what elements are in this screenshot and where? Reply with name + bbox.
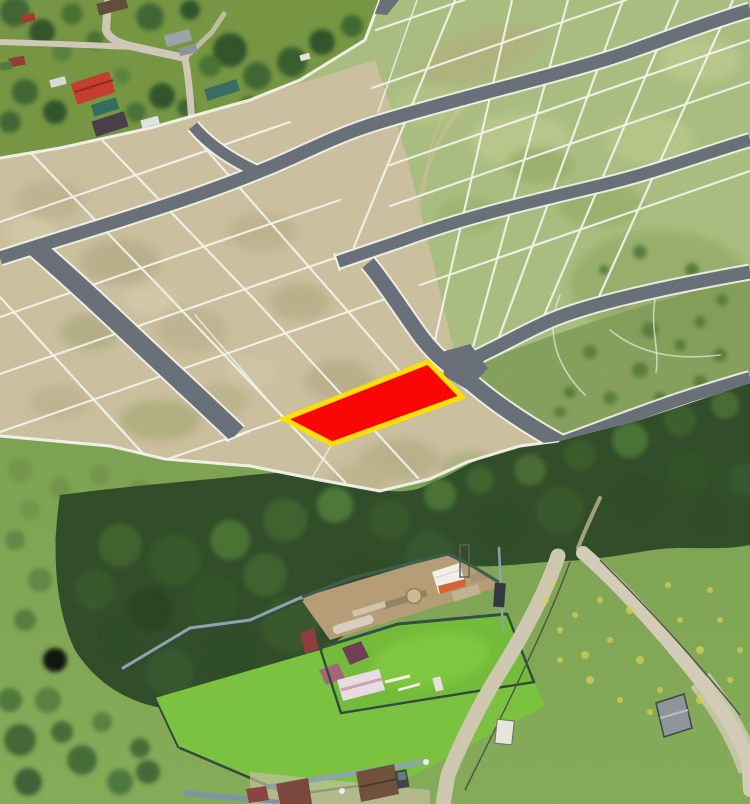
photo-grain [0, 0, 750, 804]
aerial-photo [0, 0, 750, 804]
aerial-map [0, 0, 750, 804]
